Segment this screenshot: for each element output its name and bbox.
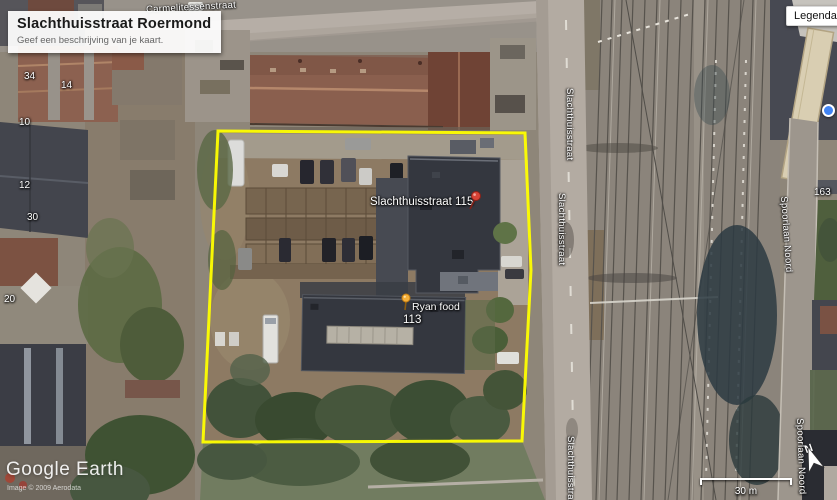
red-pushpin-icon[interactable]: [467, 190, 481, 211]
scale-bar-line: [700, 478, 792, 485]
map-title-card[interactable]: Slachthuisstraat Roermond Geef een besch…: [8, 11, 221, 53]
house-number-12: 12: [19, 180, 30, 191]
street-label-slachthuisstraat-3: Slachthuisstraat: [565, 436, 576, 500]
legend-button[interactable]: Legenda: [786, 6, 837, 26]
house-number-10: 10: [19, 117, 30, 128]
house-number-163: 163: [814, 187, 831, 198]
placemark-label-slachthuisstraat-115[interactable]: Slachthuisstraat 115: [370, 196, 473, 208]
railway-tracks: [578, 0, 785, 500]
map-subtitle: Geef een beschrijving van je kaart.: [17, 35, 211, 46]
left-buildings: [0, 30, 195, 500]
house-number-34: 34: [24, 71, 35, 82]
house-number-20: 20: [4, 294, 15, 305]
parcel-grounds: [197, 130, 531, 448]
satellite-imagery[interactable]: [0, 0, 837, 500]
street-label-slachthuisstraat-2: Slachthuisstraat: [556, 193, 567, 265]
scale-label: 30 m: [700, 486, 792, 497]
google-earth-map-view[interactable]: Carmelitessenstraat Slachthuisstraat Sla…: [0, 0, 837, 500]
street-label-slachthuisstraat-1: Slachthuisstraat: [564, 88, 575, 160]
placemark-label-ryan-food[interactable]: Ryan food: [412, 301, 460, 313]
scale-bar: 30 m: [700, 478, 792, 497]
imagery-credit: Image © 2009 Aerodata: [7, 485, 81, 492]
south-greenery: [197, 438, 545, 500]
google-earth-logo: Google Earth: [6, 459, 124, 481]
placemark-label-113: 113: [403, 314, 421, 326]
house-number-14: 14: [61, 80, 72, 91]
blue-marker-icon[interactable]: [822, 104, 835, 117]
map-title: Slachthuisstraat Roermond: [17, 16, 211, 32]
house-number-30: 30: [27, 212, 38, 223]
yellow-pushpin-icon[interactable]: [400, 293, 414, 314]
